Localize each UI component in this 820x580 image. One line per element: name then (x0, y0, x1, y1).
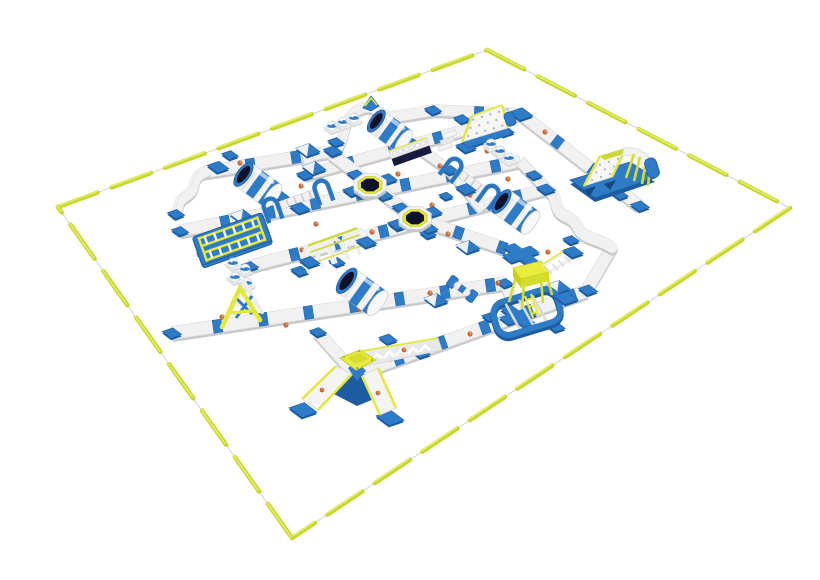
logo-mark (283, 322, 288, 327)
logo-mark (542, 129, 547, 134)
four-way-slide-mountain (289, 338, 442, 427)
logo-mark (298, 183, 303, 188)
logo-mark (369, 229, 374, 234)
logo-mark (505, 176, 510, 181)
logo-mark (395, 171, 400, 176)
logo-mark (427, 290, 432, 295)
aqua-park-3d-render (0, 0, 820, 580)
logo-mark (495, 280, 500, 285)
logo-mark (237, 160, 242, 165)
logo-mark (467, 331, 472, 336)
walkway-scurve (176, 167, 205, 216)
logo-mark (445, 231, 450, 236)
aqua-park-stage (0, 0, 820, 580)
x-slide (289, 338, 442, 427)
logo-mark (313, 221, 318, 226)
logo-mark (545, 249, 550, 254)
